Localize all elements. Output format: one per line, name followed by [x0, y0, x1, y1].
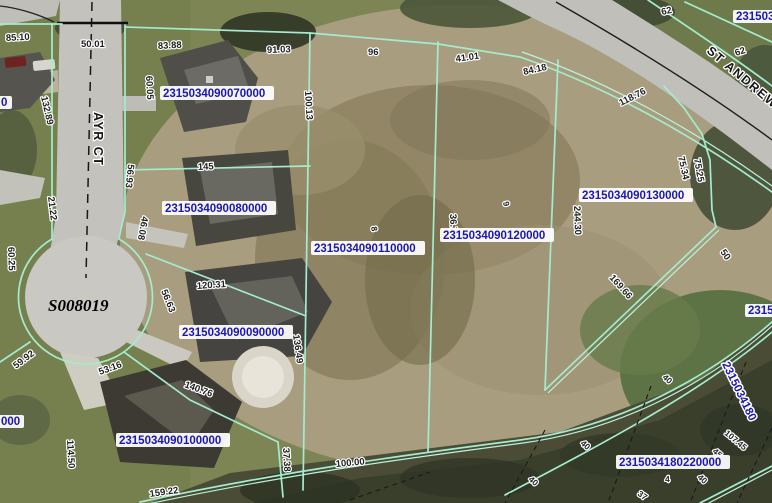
street-label-ayr-ct: AYR CT: [91, 112, 105, 166]
dimension-label: 120.31: [196, 279, 226, 292]
dimension-label: 96: [368, 47, 379, 58]
dimension-label: 4: [665, 474, 670, 484]
svg-text:0[interactable]: 0: [1, 97, 7, 109]
dimension-label: 91.03: [267, 44, 291, 56]
dimension-label: 85.10: [6, 32, 30, 44]
parcel-label-partial-mid-right[interactable]: 2315: [745, 304, 772, 317]
parcel-label-partial-left-lower[interactable]: 000: [0, 415, 24, 428]
parcel-label-2315034090120000[interactable]: 2315034090120000: [440, 228, 554, 242]
dimension-label: 60.05: [143, 76, 155, 101]
svg-text:231503[interactable]: 231503: [736, 11, 772, 23]
dimension-label: 145: [198, 161, 215, 173]
dimension-label: 37.38: [280, 448, 292, 472]
dimension-label: 100.13: [302, 91, 315, 121]
parcel-label-2315034090070000[interactable]: 2315034090070000: [160, 86, 274, 100]
dimension-label: 62: [660, 5, 673, 18]
svg-text:2315034090130000[interactable]: 2315034090130000: [582, 190, 684, 202]
parcel-label-partial-top-right[interactable]: 231503: [733, 10, 772, 23]
dimension-label: 244.30: [571, 206, 583, 235]
parcel-label-2315034180220000[interactable]: 2315034180220000: [616, 455, 730, 469]
svg-text:2315034180220000[interactable]: 2315034180220000: [619, 457, 721, 469]
svg-text:000[interactable]: 000: [1, 416, 20, 428]
dimension-label: 50.01: [81, 39, 105, 50]
parcel-label-2315034090080000[interactable]: 2315034090080000: [162, 201, 276, 215]
svg-text:2315034090120000[interactable]: 2315034090120000: [443, 230, 545, 242]
svg-text:2315034090080000[interactable]: 2315034090080000: [165, 203, 267, 215]
map-viewport[interactable]: 85.10 50.01 83.88 91.03 96 41.01 62 62 8…: [0, 0, 772, 503]
svg-text:2315[interactable]: 2315: [748, 305, 772, 317]
svg-text:2315034090110000[interactable]: 2315034090110000: [314, 243, 416, 255]
svg-text:2315034090070000[interactable]: 2315034090070000: [163, 88, 265, 100]
dimension-label: 83.88: [158, 40, 182, 52]
parcel-label-2315034090110000[interactable]: 2315034090110000: [311, 241, 425, 255]
parcel-label-2315034090130000[interactable]: 2315034090130000: [579, 188, 693, 202]
parcel-label-partial-left-upper[interactable]: 0: [0, 96, 12, 109]
svg-text:2315034090090000[interactable]: 2315034090090000: [182, 327, 284, 339]
svg-text:2315034090100000[interactable]: 2315034090100000: [119, 435, 221, 447]
dimension-label: 114.50: [64, 440, 76, 469]
survey-id-label: S008019: [48, 296, 109, 315]
parcel-label-2315034090090000[interactable]: 2315034090090000: [179, 325, 293, 339]
parcel-label-2315034090100000[interactable]: 2315034090100000: [116, 433, 230, 447]
dimension-label: 60.25: [5, 247, 17, 272]
